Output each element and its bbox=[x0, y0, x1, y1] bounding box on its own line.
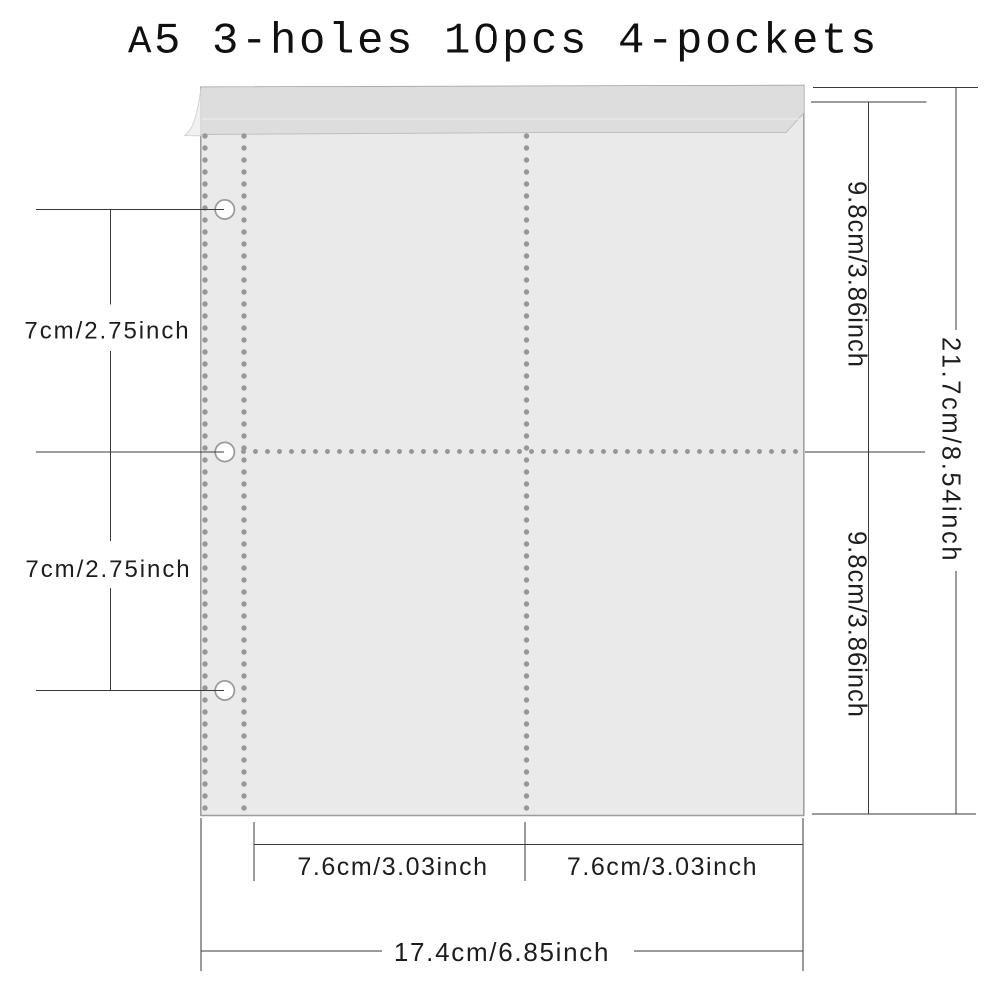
svg-text:9.8cm/3.86inch: 9.8cm/3.86inch bbox=[843, 181, 871, 368]
svg-text:7.6cm/3.03inch: 7.6cm/3.03inch bbox=[297, 853, 488, 881]
svg-text:7.6cm/3.03inch: 7.6cm/3.03inch bbox=[567, 853, 758, 881]
svg-text:17.4cm/6.85inch: 17.4cm/6.85inch bbox=[394, 937, 610, 967]
svg-text:A5 3-holes 10pcs 4-pockets: A5 3-holes 10pcs 4-pockets bbox=[128, 17, 879, 67]
svg-text:21.7cm/8.54inch: 21.7cm/8.54inch bbox=[937, 337, 965, 563]
svg-text:7cm/2.75inch: 7cm/2.75inch bbox=[24, 317, 190, 344]
svg-text:7cm/2.75inch: 7cm/2.75inch bbox=[25, 556, 191, 583]
svg-text:9.8cm/3.86inch: 9.8cm/3.86inch bbox=[843, 531, 871, 718]
